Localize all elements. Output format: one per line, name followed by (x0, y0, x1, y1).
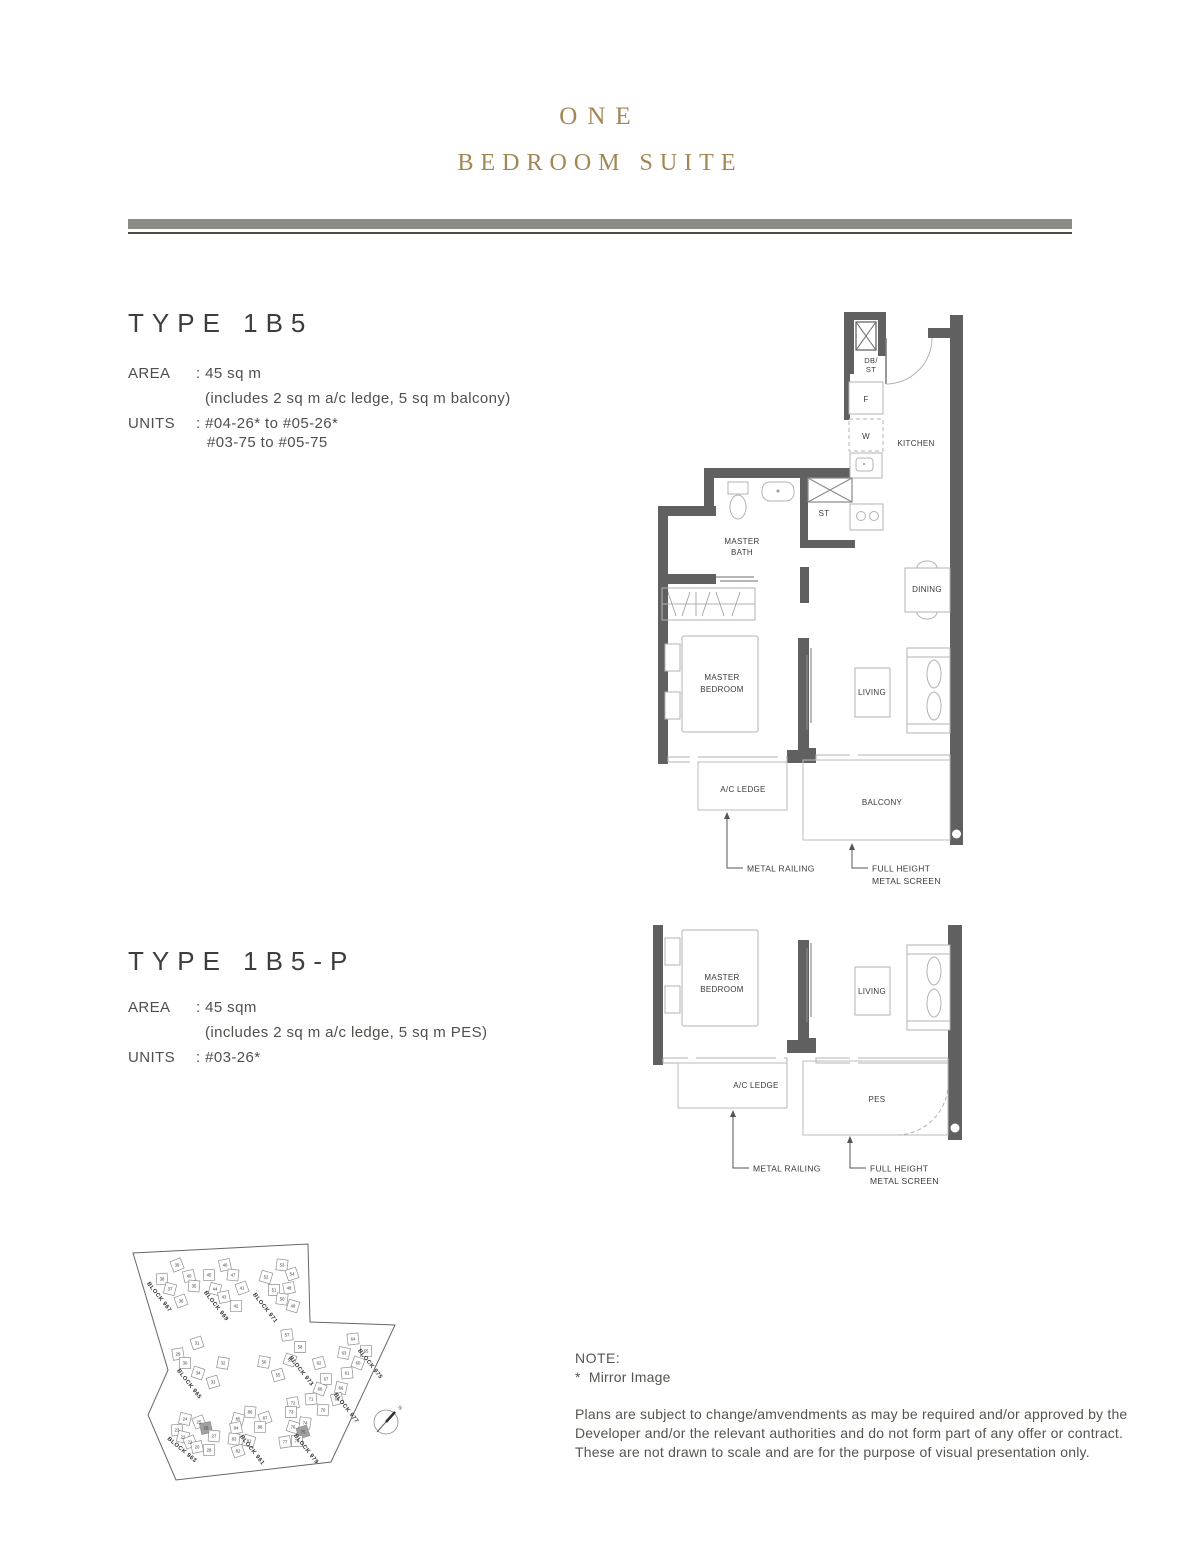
site-unit-number: 47 (231, 1273, 236, 1278)
kitchen-sink-counter (850, 453, 882, 478)
master-bedroom-label1: MASTER (704, 673, 739, 682)
sofa (907, 945, 950, 1030)
floorplan-1b5: DB/ ST F W ST KITCHEN (640, 300, 980, 900)
site-unit-number: 21 (188, 1440, 193, 1445)
type-1b5-heading: TYPE 1B5 (128, 308, 313, 339)
floorplan-1b5p: MASTER BEDROOM LIVING A/C LEDGE PES (640, 910, 980, 1210)
note-asterisk: * (575, 1369, 581, 1385)
disclaimer-line2: Developer and/or the relevant authoritie… (575, 1425, 1123, 1441)
dining-label: DINING (912, 585, 942, 594)
full-height-label1: FULL HEIGHT (872, 864, 930, 874)
site-unit-number: 88 (258, 1425, 263, 1430)
living-label: LIVING (858, 688, 886, 697)
site-unit-number: 66 (339, 1386, 344, 1391)
units-line1-1b5: : #04-26* to #05-26* (196, 415, 338, 432)
full-height-label1: FULL HEIGHT (870, 1164, 928, 1174)
site-unit-number: 84 (234, 1426, 239, 1431)
site-unit-number: 63 (342, 1351, 347, 1356)
site-unit-number: 61 (345, 1371, 350, 1376)
units-line2-1b5: #03-75 to #05-75 (207, 434, 328, 451)
site-unit-number: 29 (176, 1352, 181, 1357)
pes-door-swing (897, 1086, 948, 1135)
area-label-1b5p: AREA (128, 999, 170, 1016)
site-unit-number: 24 (183, 1417, 188, 1422)
master-bedroom-label2: BEDROOM (700, 985, 743, 994)
washer-label: W (862, 432, 870, 441)
wall-end-column (951, 1124, 960, 1133)
master-bath-label1: MASTER (724, 537, 759, 546)
site-unit-number: 32 (221, 1361, 226, 1366)
site-unit-number: 40 (187, 1274, 192, 1279)
area-label-1b5: AREA (128, 365, 170, 382)
area-value-1b5: : 45 sq m (196, 365, 261, 382)
site-unit-number: 86 (248, 1410, 253, 1415)
site-unit-number: 83 (232, 1437, 237, 1442)
site-plan-svg: 3940383537364645474441434253525448515049… (118, 1232, 438, 1512)
site-unit-number: 50 (280, 1297, 285, 1302)
db-st-box (856, 322, 876, 350)
site-unit-number: 73 (289, 1410, 294, 1415)
site-unit-number: 76 (291, 1425, 296, 1430)
units-line1-1b5p: : #03-26* (196, 1049, 260, 1066)
master-bedroom-label2: BEDROOM (700, 685, 743, 694)
note-mirror-line: * Mirror Image (575, 1369, 671, 1385)
site-unit-number: 20 (195, 1445, 200, 1450)
site-unit-number: 37 (168, 1287, 173, 1292)
master-bath-label2: BATH (731, 548, 753, 557)
site-unit-number: 45 (207, 1273, 212, 1278)
site-unit-number: 27 (212, 1434, 217, 1439)
site-unit-number: 56 (262, 1360, 267, 1365)
site-unit-number: 54 (290, 1272, 295, 1277)
site-unit-number: 42 (234, 1304, 239, 1309)
site-unit-number: 51 (272, 1288, 277, 1293)
toilet (728, 482, 748, 519)
divider-line (128, 232, 1072, 234)
site-unit-number: 36 (179, 1299, 184, 1304)
site-unit-number: 43 (222, 1295, 227, 1300)
site-block-label: BLOCK 977 (332, 1392, 359, 1424)
site-unit-number: 82 (236, 1449, 241, 1454)
metal-railing-leader (724, 812, 743, 868)
site-unit-number: 26 (204, 1426, 209, 1431)
ac-ledge-label: A/C LEDGE (720, 785, 765, 794)
site-unit-number: 31 (195, 1341, 200, 1346)
metal-railing-leader (730, 1110, 749, 1168)
compass-north-label: N (396, 1405, 403, 1412)
site-unit-number: 62 (317, 1361, 322, 1366)
disclaimer-line3: These are not drawn to scale and are for… (575, 1444, 1090, 1460)
page-title-line2: BEDROOM SUITE (0, 150, 1200, 177)
site-block-label: BLOCK 971 (251, 1292, 278, 1325)
site-unit-number: 39 (175, 1263, 180, 1268)
site-unit-number: 75 (301, 1430, 306, 1435)
ac-ledge-label: A/C LEDGE (733, 1081, 778, 1090)
area-note-1b5p: (includes 2 sq m a/c ledge, 5 sq m PES) (205, 1024, 487, 1041)
metal-screen-leader (847, 1136, 866, 1168)
store-label: ST (819, 509, 830, 518)
disclaimer-line1: Plans are subject to change/amvendments … (575, 1406, 1127, 1422)
bath-sliding-door (716, 577, 758, 581)
kitchen-hob (850, 504, 883, 530)
site-block-label: BLOCK 979 (292, 1433, 319, 1466)
site-unit-number: 72 (291, 1401, 296, 1406)
units-label-1b5p: UNITS (128, 1049, 175, 1066)
site-unit-number: 25 (197, 1420, 202, 1425)
site-unit-number: 55 (276, 1373, 281, 1378)
site-units (156, 1258, 372, 1458)
db-label-line1: DB/ (864, 356, 878, 365)
site-unit-number: 58 (298, 1345, 303, 1350)
wardrobe (662, 588, 755, 620)
full-height-label2: METAL SCREEN (870, 1176, 939, 1186)
site-unit-number: 71 (309, 1397, 314, 1402)
type-1b5p-heading: TYPE 1B5-P (128, 946, 355, 977)
site-unit-number: 87 (263, 1416, 268, 1421)
metal-railing-label: METAL RAILING (747, 864, 815, 874)
site-unit-number: 74 (303, 1421, 308, 1426)
note-heading: NOTE: (575, 1350, 620, 1366)
site-unit-number: 68 (318, 1387, 323, 1392)
page-title-line1: ONE (0, 103, 1200, 131)
living-label: LIVING (858, 987, 886, 996)
site-unit-number: 85 (236, 1417, 241, 1422)
site-unit-number: 64 (351, 1337, 356, 1342)
area-value-1b5p: : 45 sqm (196, 999, 257, 1016)
note-mirror-text: Mirror Image (589, 1369, 671, 1385)
site-unit-number: 67 (324, 1377, 329, 1382)
db-label-line2: ST (866, 365, 876, 374)
site-unit-number: 35 (192, 1284, 197, 1289)
shaft-box (808, 478, 852, 502)
page: ONE BEDROOM SUITE TYPE 1B5 AREA : 45 sq … (0, 0, 1200, 1564)
site-unit-number: 53 (280, 1263, 285, 1268)
divider-bar (128, 219, 1072, 229)
site-unit-number: 34 (196, 1371, 201, 1376)
site-unit-number: 57 (285, 1333, 290, 1338)
site-unit-number: 70 (321, 1408, 326, 1413)
site-unit-number: 44 (213, 1287, 218, 1292)
balcony-label: BALCONY (862, 798, 903, 807)
site-unit-number: 77 (283, 1440, 288, 1445)
fridge-label: F (863, 395, 868, 404)
master-bedroom-label1: MASTER (704, 973, 739, 982)
wall-end-column (952, 830, 961, 839)
site-unit-number: 49 (291, 1304, 296, 1309)
site-unit-number: 38 (160, 1277, 165, 1282)
metal-screen-leader (849, 843, 868, 868)
site-unit-number: 41 (240, 1286, 245, 1291)
compass-icon: N (374, 1405, 403, 1434)
site-unit-number: 30 (183, 1361, 188, 1366)
full-height-label2: METAL SCREEN (872, 876, 941, 886)
pes-label: PES (869, 1095, 886, 1104)
entry-door-swing (886, 338, 932, 384)
metal-railing-label: METAL RAILING (753, 1164, 821, 1174)
site-unit-number: 23 (175, 1428, 180, 1433)
site-unit-number: 60 (356, 1361, 361, 1366)
site-unit-number: 33 (211, 1380, 216, 1385)
site-block-label: BLOCK 973 (287, 1355, 314, 1388)
bath-basin (762, 482, 794, 501)
site-unit-number: 22 (181, 1435, 186, 1440)
area-note-1b5: (includes 2 sq m a/c ledge, 5 sq m balco… (205, 390, 511, 407)
sofa (907, 648, 950, 733)
units-label-1b5: UNITS (128, 415, 175, 432)
site-unit-number: 28 (207, 1448, 212, 1453)
bed (665, 636, 758, 732)
site-unit-number: 48 (287, 1286, 292, 1291)
site-unit-number: 46 (223, 1263, 228, 1268)
kitchen-label: KITCHEN (897, 439, 934, 448)
site-unit-number: 52 (264, 1275, 269, 1280)
